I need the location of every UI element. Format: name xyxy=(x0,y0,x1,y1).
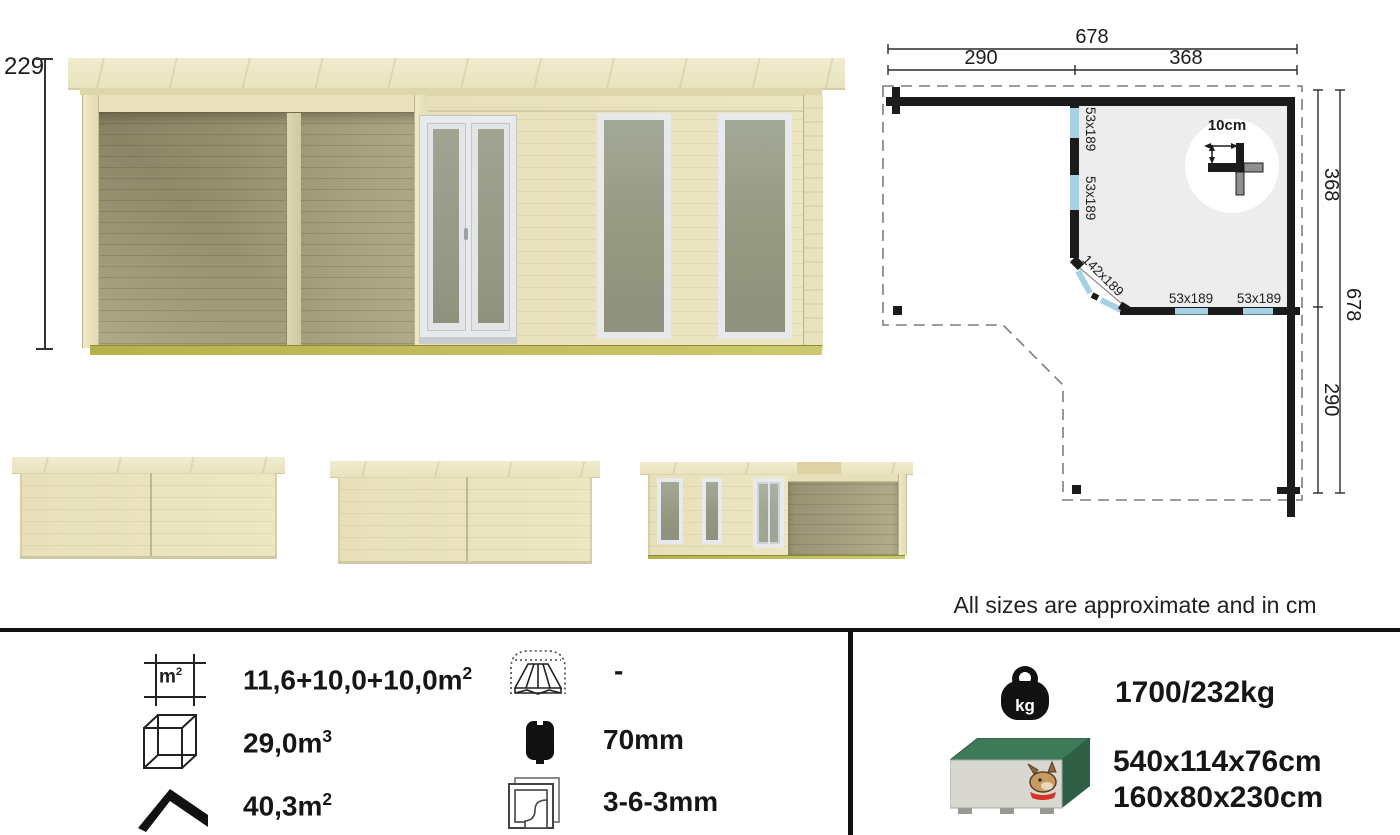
package-size-1: 540x114x76cm xyxy=(1113,745,1322,779)
rear-elevation xyxy=(12,457,285,560)
wall-joint xyxy=(150,473,152,556)
porch-post-middle xyxy=(286,113,301,345)
plan-bottom-window-1 xyxy=(1175,308,1208,315)
wall-thickness-value: 70mm xyxy=(603,724,684,756)
window-glass xyxy=(706,482,718,540)
volume-icon xyxy=(138,710,202,774)
plan-window-label-bottom-1: 53x189 xyxy=(1168,291,1214,306)
window-glass xyxy=(661,482,679,540)
door-threshold xyxy=(420,337,516,344)
plan-detail-label: 10cm xyxy=(1200,117,1254,134)
side-elevation-closed xyxy=(330,461,600,565)
plan-dim-right-total: 678 xyxy=(1341,288,1364,321)
side-window-2 xyxy=(702,478,722,544)
flat-roof xyxy=(68,58,845,90)
height-dimension-line xyxy=(44,59,46,350)
front-elevation: 229 xyxy=(0,0,860,380)
front-window-1 xyxy=(597,113,671,339)
plan-dim-right-bottom: 290 xyxy=(1319,383,1342,416)
corner-trim xyxy=(803,95,823,350)
double-door xyxy=(419,115,517,344)
front-window-2 xyxy=(718,113,792,339)
plan-dim-right-top: 368 xyxy=(1319,168,1342,201)
product-spec-sheet: 229 xyxy=(0,0,1400,835)
plan-window-label-bottom-2: 53x189 xyxy=(1236,291,1282,306)
door-handle xyxy=(464,228,468,240)
porch-post-left xyxy=(82,95,99,348)
foundation-beam xyxy=(90,345,822,355)
plan-bottom-window-2 xyxy=(1243,308,1273,315)
weight-value: 1700/232kg xyxy=(1115,676,1275,710)
floor-area-value: 11,6+10,0+10,0m2 xyxy=(243,663,472,696)
wall xyxy=(338,477,592,561)
spec-separator-line xyxy=(0,628,1400,632)
spec-vertical-divider xyxy=(848,628,853,835)
package-icon: Tuindeco xyxy=(950,738,1092,818)
plan-dim-top-total: 678 xyxy=(1042,26,1142,49)
height-dimension-tick-top xyxy=(36,58,53,60)
roof-fascia xyxy=(80,88,822,95)
glazing-value: 3-6-3mm xyxy=(603,786,718,818)
roof xyxy=(12,457,285,474)
door-leaf-right xyxy=(471,123,510,331)
glazing-icon xyxy=(505,774,565,832)
weight-icon-label: kg xyxy=(1015,696,1035,715)
base-line xyxy=(648,555,905,559)
plan-window-label-left-2: 53x189 xyxy=(1083,176,1098,220)
plan-dim-top-left: 290 xyxy=(931,47,1031,70)
roof-area-value: 40,3m2 xyxy=(243,789,332,822)
floor-area-icon-label: m2 xyxy=(159,666,182,688)
roof xyxy=(330,461,600,478)
door-glass-left xyxy=(433,129,459,323)
porch-back-wall xyxy=(90,112,420,345)
wall xyxy=(20,473,277,556)
wall-thickness-icon xyxy=(525,716,555,768)
front-wall-header-line xyxy=(428,110,822,112)
canopy-icon xyxy=(505,646,571,706)
canopy-value: - xyxy=(614,655,623,687)
base-line xyxy=(20,556,277,559)
door-glass-right xyxy=(478,129,504,323)
roof-step-patch xyxy=(797,462,841,474)
plan-dim-top-right: 368 xyxy=(1136,47,1236,70)
volume-value: 29,0m3 xyxy=(243,726,332,759)
window-glass xyxy=(604,120,664,332)
side-door xyxy=(753,478,784,548)
door-leaf-left xyxy=(427,123,466,331)
package-size-2: 160x80x230cm xyxy=(1113,781,1323,815)
height-dimension-tick-bottom xyxy=(36,348,53,350)
base-line xyxy=(338,561,592,564)
plan-left-window-1 xyxy=(1070,108,1079,138)
sizes-note: All sizes are approximate and in cm xyxy=(945,592,1325,619)
floor-area-icon: m2 xyxy=(142,652,208,708)
door-mullion xyxy=(768,482,770,544)
side-window-1 xyxy=(657,478,683,544)
window-glass xyxy=(725,120,785,332)
plan-left-window-2 xyxy=(1070,175,1079,210)
floor-plan-drawing xyxy=(870,20,1360,530)
weight-icon: kg xyxy=(998,664,1052,720)
plan-window-label-left-1: 53x189 xyxy=(1083,107,1098,151)
roof-area-icon xyxy=(136,784,212,834)
wall-joint xyxy=(466,477,468,561)
